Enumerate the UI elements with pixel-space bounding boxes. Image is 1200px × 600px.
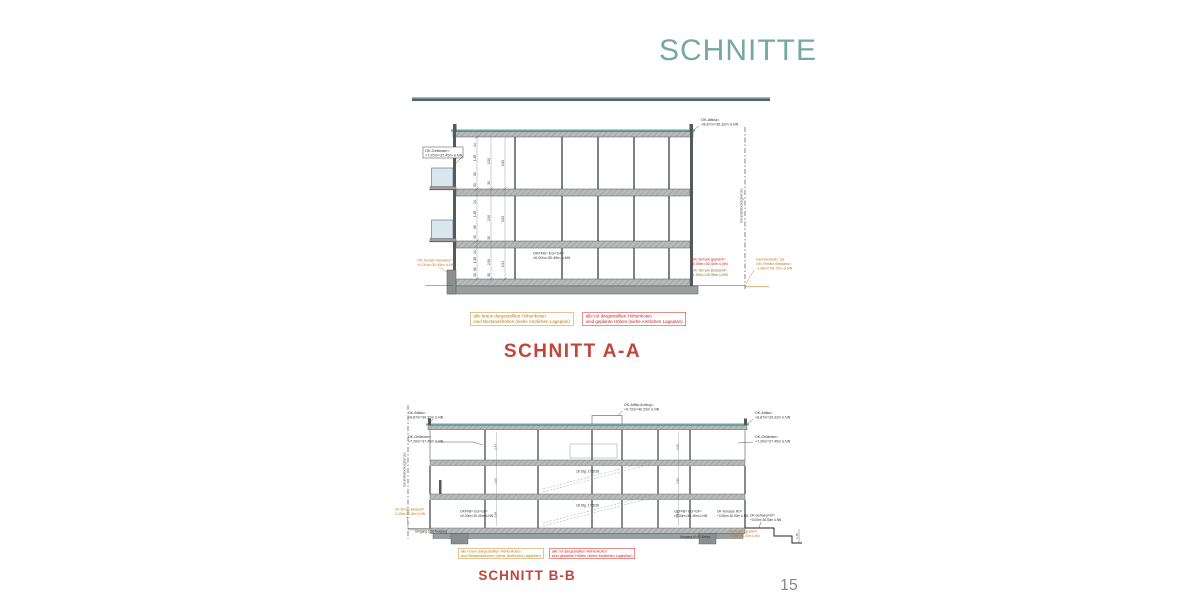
legend-bb: alle braun dargestellten Höhenkoten sind… xyxy=(458,548,635,559)
aa-annotation-gelaender: OK-Geländer= +7.20m=37.45m ü.NN xyxy=(423,147,463,163)
bb-shaft-outline xyxy=(570,444,617,458)
dim-label: 30 xyxy=(487,181,491,185)
legend-red-box: alle rot dargestellten Höhenkoten sind g… xyxy=(549,548,635,559)
caption-schnitt-bb: SCHNITT B-B xyxy=(405,568,649,583)
annotation-line: OK-Gehweg NO= xyxy=(750,514,775,518)
page-title: SCHNITTE xyxy=(659,34,817,68)
annotation-line: OK-Terrain Bestand= xyxy=(756,262,792,266)
annotation-line: OK-Geländer= xyxy=(408,435,431,439)
aa-annotation-terrain-bestand-right: OK-Terrain Bestand= -1.50m=28.95m ü.NN xyxy=(692,269,729,278)
annotation-line: +9.72m=40.20m ü.NN xyxy=(624,408,660,412)
aa-parapet-left xyxy=(453,124,457,132)
slide: SCHNITTE xyxy=(0,0,1200,600)
dim-label: 1.38 xyxy=(473,211,477,217)
legend-line: sind geplante Höhen (siehe Amtlichen Lag… xyxy=(586,319,683,325)
dim-label: 30 xyxy=(487,273,491,277)
dim-label: 30 xyxy=(487,236,491,240)
dim-label: 2.47 xyxy=(494,444,498,450)
aa-roof-line xyxy=(451,130,695,132)
aa-boundary: Grundstücksgrenze xyxy=(739,127,746,289)
dim-label: 80 xyxy=(473,267,477,271)
aa-annotation-terrain-geplant: OK-Terrain geplant= -0.05m=30.40m ü.NN xyxy=(692,258,729,267)
annotation-line: -0.05m=30.40m ü.NN xyxy=(729,534,760,538)
bb-building xyxy=(426,416,749,545)
aa-annotation-okffb: OKFFB= EG=GF= ±0.00m=30.45m ü.NN xyxy=(533,252,570,261)
bb-foundation-pad-left xyxy=(451,534,468,545)
dim-label: 2.66 xyxy=(676,478,680,484)
aa-foundation xyxy=(449,286,698,294)
bb-annotation-gehweg: OK-Gehweg NO= +0.05m=30.50m ü.NN xyxy=(750,514,782,528)
bb-gehweg-leader xyxy=(759,522,761,528)
bb-annotation-terrasse: OK-Terrasse NO= +0.05m=30.50m ü.NN xyxy=(717,510,749,519)
annotation-line: +8.87m=39.32m ü.NN xyxy=(701,123,739,127)
dim-label: 2.94 xyxy=(494,512,498,518)
aa-columns-floor3 xyxy=(515,137,669,189)
annotation-line: ±0.00m=30.45m ü.NN xyxy=(460,514,494,518)
annotation-line: ±0.00m=30.45m ü.NN xyxy=(674,514,708,518)
annotation-line: OK-Terrasse NO= xyxy=(717,510,743,514)
annotation-line: OK-Terrain Bestand= xyxy=(395,508,425,512)
bb-annotation-okffb-left: OKFFB= EG=GF= ±0.00m=30.45m ü.NN xyxy=(460,510,494,519)
bb-annotation-gelaender-right: OK-Geländer= +7.20m=37.45m ü.NN xyxy=(738,435,791,444)
dim-label: 2.50 xyxy=(487,158,491,164)
bb-slab-2 xyxy=(430,460,745,466)
legend-brown-box: alle braun dargestellten Höhenkoten sind… xyxy=(458,548,543,559)
bb-stair-label-upper: 18 Stg. 17,5/28 xyxy=(576,470,599,474)
aa-annotation-attika: OK-Attika= +8.87m=39.32m ü.NN xyxy=(693,118,739,131)
legend-aa: alle braun dargestellten Höhenkoten sind… xyxy=(470,312,686,326)
dim-label: 2.50 xyxy=(487,259,491,265)
bb-ground-slab xyxy=(430,528,745,534)
aa-balconies xyxy=(429,168,456,242)
dim-label: 80 xyxy=(473,172,477,176)
annotation-line: +8.87m=39.32m ü.NN xyxy=(408,416,444,420)
bb-boundary-label: Grundstücksgrenze xyxy=(402,452,407,487)
dim-label: 1.38 xyxy=(473,155,477,161)
annotation-line: +7.20m=37.45m ü.NN xyxy=(755,440,791,444)
dim-label: 2.66 xyxy=(676,444,680,450)
bb-annotation-terrain-bestand: OK-Terrain Bestand= -0.15m=30.30m ü.NN xyxy=(395,508,426,528)
dim-label: 24 xyxy=(473,250,477,254)
aa-boundary-label: Grundstücksgrenze xyxy=(739,188,744,223)
dim-label: 50 xyxy=(473,273,477,277)
dim-label: 24 xyxy=(473,200,477,204)
title-divider xyxy=(412,97,770,101)
aa-foundation-block xyxy=(447,270,456,294)
bb-attika-right-leader xyxy=(748,419,754,424)
aa-annotation-terrain-bestand-left: OK-Terrain Bestand= +0.00m=30.45m ü.NN xyxy=(417,259,455,277)
annotation-line: -0.05m=30.40m ü.NN xyxy=(692,262,729,266)
aa-dim-lines xyxy=(477,137,505,279)
bb-roof-slab xyxy=(428,425,747,430)
dim-label: 2.66 xyxy=(494,478,498,484)
bb-aufzug-leader xyxy=(618,411,623,416)
aa-dimension-chains: 24 1.38 80 50 2.50 30 2.62 24 1.38 80 50… xyxy=(473,136,507,281)
dim-label: 2.94 xyxy=(501,261,505,267)
annotation-line: OK-Attika Aufzug= xyxy=(624,403,653,407)
bb-dimensions: 2.47 2.66 2.94 2.66 2.66 2.94 1.15 xyxy=(494,432,800,539)
dim-label: 50 xyxy=(473,235,477,239)
annotation-line: OK-Attika= xyxy=(408,411,425,415)
annotation-line: OKFFB= EG=GF= xyxy=(460,510,488,514)
bb-annotation-attika-right: OK-Attika= +8.87m=39.32m ü.NN xyxy=(748,411,791,424)
bb-roof-line xyxy=(426,424,749,426)
dim-label: 1.38 xyxy=(473,257,477,263)
aa-strasse-leader xyxy=(746,270,754,284)
annotation-line: +7.20m=37.45m ü.NN xyxy=(408,440,444,444)
aa-ground-slab xyxy=(456,279,690,286)
annotation-line: +7.20m=37.45m ü.NN xyxy=(425,154,463,158)
annotation-line: Gemeindestr. 2a xyxy=(756,258,785,262)
annotation-line: OK-Geländer= xyxy=(425,149,450,153)
legend-line: sind Bestandshöhen (siehe Amtlichen Lage… xyxy=(474,319,570,325)
aa-attika-leader xyxy=(693,126,699,131)
annotation-line: ±0.00m=30.45m ü.NN xyxy=(533,256,570,260)
annotation-line: OK-Attika= xyxy=(755,411,772,415)
aa-roof-slab xyxy=(453,132,693,138)
annotation-line: OK-Terrain Bestand= xyxy=(692,269,728,273)
bb-gelaender-right-leader xyxy=(738,442,753,443)
dim-label: 24 xyxy=(473,143,477,147)
annotation-line: -1.68m=28.73m ü.NN xyxy=(756,267,793,271)
annotation-line: +0.00m=30.45m ü.NN xyxy=(417,263,455,267)
bb-boundary: Grundstücksgrenze xyxy=(402,405,409,539)
annotation-line: OKFFB= EG=GF= xyxy=(533,252,565,256)
annotation-line: +8.87m=39.32m ü.NN xyxy=(755,416,791,420)
legend-line: sind Bestandshöhen (siehe Amtlichen Lage… xyxy=(461,554,541,559)
dim-label: 2.62 xyxy=(501,160,505,166)
bb-annotation-attika-left: OK-Attika= +8.87m=39.32m ü.NN xyxy=(408,411,444,424)
annotation-line: OK-Terrain geplant= xyxy=(729,530,758,534)
dim-label: 1.15 xyxy=(795,533,799,539)
dim-label: 50 xyxy=(473,183,477,187)
caption-schnitt-aa: SCHNITT A-A xyxy=(405,341,740,363)
aa-balcony-lower xyxy=(432,220,454,239)
dim-label: 3.00 xyxy=(501,216,505,222)
aa-parapet-right xyxy=(690,124,694,132)
bb-annotation-terrain-geplant: OK-Terrain geplant= -0.05m=30.40m ü.NN xyxy=(729,530,760,539)
legend-red-box: alle rot dargestellten Höhenkoten sind g… xyxy=(582,312,686,326)
aa-balcony-lower-slab xyxy=(430,239,456,242)
annotation-line: +0.05m=30.50m ü.NN xyxy=(750,518,782,522)
bb-slab-1 xyxy=(430,494,745,500)
bb-roof-railings xyxy=(430,430,745,460)
annotation-line: OK-Attika= xyxy=(701,118,720,122)
bb-parapet-right xyxy=(744,419,747,426)
bb-walls-floor3 xyxy=(485,430,690,460)
section-aa-drawing: 24 1.38 80 50 2.50 30 2.62 24 1.38 80 50… xyxy=(405,113,805,305)
aa-building xyxy=(447,124,698,294)
legend-line: sind geplante Höhen (siehe Amtlichen Lag… xyxy=(552,554,633,559)
bb-wall-stub-left xyxy=(439,480,442,494)
dim-label: 2.50 xyxy=(487,215,491,221)
annotation-line: +0.05m=30.50m ü.NN xyxy=(717,514,749,518)
annotation-line: -0.15m=30.30m ü.NN xyxy=(395,512,426,516)
annotation-line: OK-Geländer= xyxy=(755,435,778,439)
aa-columns-floor2 xyxy=(515,196,669,241)
annotation-line: OK-Terrain geplant= xyxy=(692,258,727,262)
bb-umgang-right-label: Umgang ±0.00 Belag xyxy=(680,535,710,539)
bb-umgang-left-label: Umgang 1:20 Neigung xyxy=(415,530,447,534)
annotation-line: OKFFB= EG=GF= xyxy=(674,510,702,514)
annotation-line: -1.50m=28.95m ü.NN xyxy=(692,273,729,277)
bb-annotation-okffb-right: OKFFB= EG=GF= ±0.00m=30.45m ü.NN xyxy=(674,510,708,519)
bb-annotation-gelaender-left: OK-Geländer= +7.20m=37.45m ü.NN xyxy=(408,435,483,445)
annotation-line: OK-Terrain Bestand= xyxy=(417,259,453,263)
page-number: 15 xyxy=(780,577,798,595)
bb-stair-label-lower: 18 Stg. 17,5/28 xyxy=(576,504,599,508)
aa-balcony-upper xyxy=(432,168,454,187)
bb-dim-lines xyxy=(497,432,679,526)
section-bb-drawing: Grundstücksgrenze xyxy=(393,397,807,565)
dim-label: 80 xyxy=(473,225,477,229)
aa-annotation-strasse: Gemeindestr. 2a OK-Terrain Bestand= -1.6… xyxy=(746,258,793,285)
aa-balcony-upper-slab xyxy=(430,187,456,190)
bb-annotation-aufzug: OK-Attika Aufzug= +9.72m=40.20m ü.NN xyxy=(618,403,660,416)
legend-brown-box: alle braun dargestellten Höhenkoten sind… xyxy=(470,312,573,326)
